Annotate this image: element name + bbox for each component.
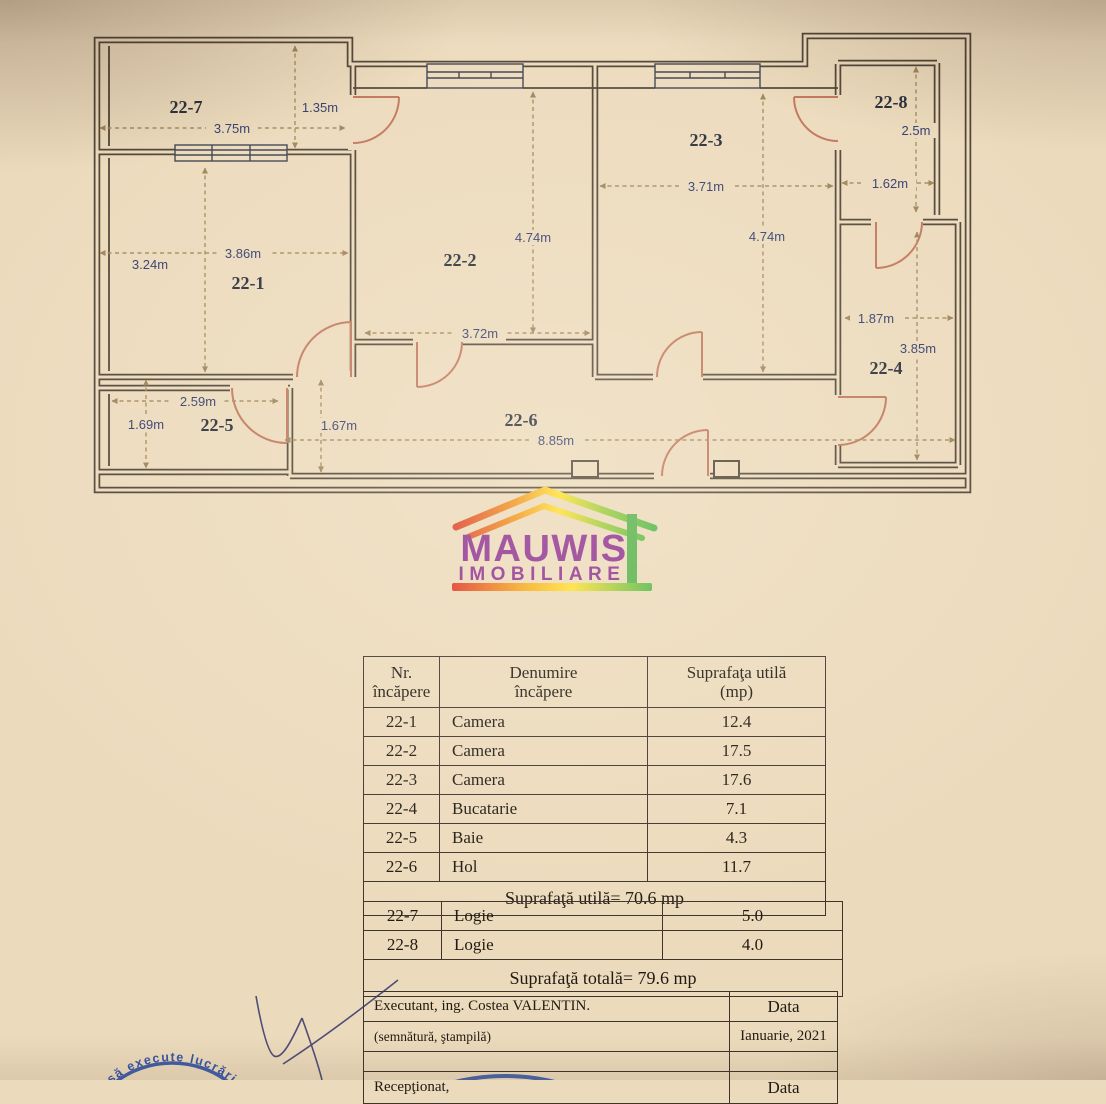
window-room-22-3 — [655, 64, 760, 88]
dim-label: 1.35m — [302, 100, 338, 115]
door-22-7 — [353, 97, 399, 143]
table-row: 22-6 Hol 11.7 — [364, 853, 826, 882]
table-row: 22-2 Camera 17.5 — [364, 737, 826, 766]
cell-area: 7.1 — [648, 795, 826, 824]
door-22-1 — [297, 322, 351, 377]
door-22-2 — [417, 342, 462, 387]
room-label-22-1: 22-1 — [232, 273, 265, 293]
header-denumire-line1: Denumire — [440, 663, 647, 682]
dim-label: 1.67m — [321, 418, 357, 433]
receptionat-row: Recepţionat, Data — [364, 1072, 838, 1104]
empty-cell — [730, 1052, 838, 1072]
cell-area: 5.0 — [663, 902, 843, 931]
door-22-8 — [794, 97, 838, 141]
cell-area: 4.3 — [648, 824, 826, 853]
entry-door — [662, 430, 708, 476]
dim-label: 1.62m — [872, 176, 908, 191]
table-header-row: Nr. încăpere Denumire încăpere Suprafaţa… — [364, 657, 826, 708]
room-label-22-5: 22-5 — [201, 415, 234, 435]
cell-area: 11.7 — [648, 853, 826, 882]
agency-logo: MAUWIS IMOBILIARE — [452, 490, 654, 591]
cell-nr: 22-2 — [364, 737, 440, 766]
round-stamp-outline — [88, 1063, 256, 1080]
cell-nr: 22-8 — [364, 931, 442, 960]
dim-label: 3.71m — [688, 179, 724, 194]
cell-name: Baie — [440, 824, 648, 853]
cell-area: 12.4 — [648, 708, 826, 737]
stamp-text: să execute lucrări — [104, 1050, 240, 1080]
date-value: Ianuarie, 2021 — [730, 1022, 838, 1052]
scanned-floorplan-document: { "plan": { "rooms": ["22-7", "22-1", "2… — [0, 0, 1106, 1080]
header-nr: Nr. încăpere — [364, 657, 440, 708]
area-table: Nr. încăpere Denumire încăpere Suprafaţa… — [363, 656, 826, 916]
windows — [175, 64, 760, 161]
door-22-8-to-22-4 — [876, 222, 922, 268]
room-label-22-3: 22-3 — [690, 130, 723, 150]
empty-row — [364, 1052, 838, 1072]
dim-label: 3.24m — [132, 257, 168, 272]
cell-area: 17.6 — [648, 766, 826, 795]
cell-name: Camera — [440, 766, 648, 795]
logie-table: 22-7 Logie 5.0 22-8 Logie 4.0 Suprafaţă … — [363, 901, 843, 997]
dim-label: 4.74m — [749, 229, 785, 244]
room-label-22-4: 22-4 — [870, 358, 903, 378]
table-row: 22-8 Logie 4.0 — [364, 931, 843, 960]
door-22-3 — [657, 332, 702, 377]
cell-area: 4.0 — [663, 931, 843, 960]
room-label-22-6: 22-6 — [505, 410, 538, 430]
logo-subtitle: IMOBILIARE — [459, 564, 626, 585]
dim-label: 2.5m — [902, 123, 931, 138]
cell-name: Logie — [442, 902, 663, 931]
cell-nr: 22-1 — [364, 708, 440, 737]
cell-name: Camera — [440, 737, 648, 766]
cell-name: Bucatarie — [440, 795, 648, 824]
header-denumire: Denumire încăpere — [440, 657, 648, 708]
header-nr-line2: încăpere — [364, 682, 439, 701]
table-row: 22-1 Camera 12.4 — [364, 708, 826, 737]
cell-name: Hol — [440, 853, 648, 882]
table-row: 22-4 Bucatarie 7.1 — [364, 795, 826, 824]
dim-label: 1.69m — [128, 417, 164, 432]
header-suprafata-line2: (mp) — [648, 682, 825, 701]
door-22-4 — [838, 397, 886, 445]
cell-area: 17.5 — [648, 737, 826, 766]
empty-cell — [364, 1052, 730, 1072]
executant-label: Executant, ing. Costea VALENTIN. — [364, 992, 730, 1022]
cell-name: Logie — [442, 931, 663, 960]
cell-nr: 22-4 — [364, 795, 440, 824]
window-room-22-2 — [427, 64, 523, 88]
dim-label: 4.74m — [515, 230, 551, 245]
signature-block: Executant, ing. Costea VALENTIN. Data (s… — [363, 991, 838, 1104]
floor-plan-drawing: 3.75m 1.35m 3.86m 3.24m 4.74m 3.72m 3.71… — [0, 0, 1106, 640]
door-22-5 — [232, 388, 287, 443]
table-row: 22-3 Camera 17.6 — [364, 766, 826, 795]
cell-nr: 22-3 — [364, 766, 440, 795]
cell-nr: 22-5 — [364, 824, 440, 853]
room-label-22-8: 22-8 — [875, 92, 908, 112]
header-nr-line1: Nr. — [364, 663, 439, 682]
dim-label: 3.72m — [462, 326, 498, 341]
dim-label: 2.59m — [180, 394, 216, 409]
receptionat-label: Recepţionat, — [364, 1072, 730, 1104]
header-suprafata: Suprafaţa utilă (mp) — [648, 657, 826, 708]
dim-label: 3.86m — [225, 246, 261, 261]
data-label: Data — [730, 1072, 838, 1104]
data-label: Data — [730, 992, 838, 1022]
signature-note: (semnătură, ştampilă) — [364, 1022, 730, 1052]
table-row: 22-7 Logie 5.0 — [364, 902, 843, 931]
dimensions: 3.75m 1.35m 3.86m 3.24m 4.74m 3.72m 3.71… — [100, 46, 955, 472]
cell-name: Camera — [440, 708, 648, 737]
executant-row: Executant, ing. Costea VALENTIN. Data — [364, 992, 838, 1022]
room-label-22-7: 22-7 — [170, 97, 203, 117]
cell-nr: 22-7 — [364, 902, 442, 931]
dim-label: 3.85m — [900, 341, 936, 356]
dim-label: 3.75m — [214, 121, 250, 136]
header-denumire-line2: încăpere — [440, 682, 647, 701]
table-row: 22-5 Baie 4.3 — [364, 824, 826, 853]
dim-label: 8.85m — [538, 433, 574, 448]
stamp-text-path: să execute lucrări — [104, 1050, 240, 1080]
room-label-22-2: 22-2 — [444, 250, 477, 270]
signature-note-row: (semnătură, ştampilă) Ianuarie, 2021 — [364, 1022, 838, 1052]
cell-nr: 22-6 — [364, 853, 440, 882]
dim-label: 1.87m — [858, 311, 894, 326]
header-suprafata-line1: Suprafaţa utilă — [648, 663, 825, 682]
window-room-22-7 — [175, 145, 287, 161]
